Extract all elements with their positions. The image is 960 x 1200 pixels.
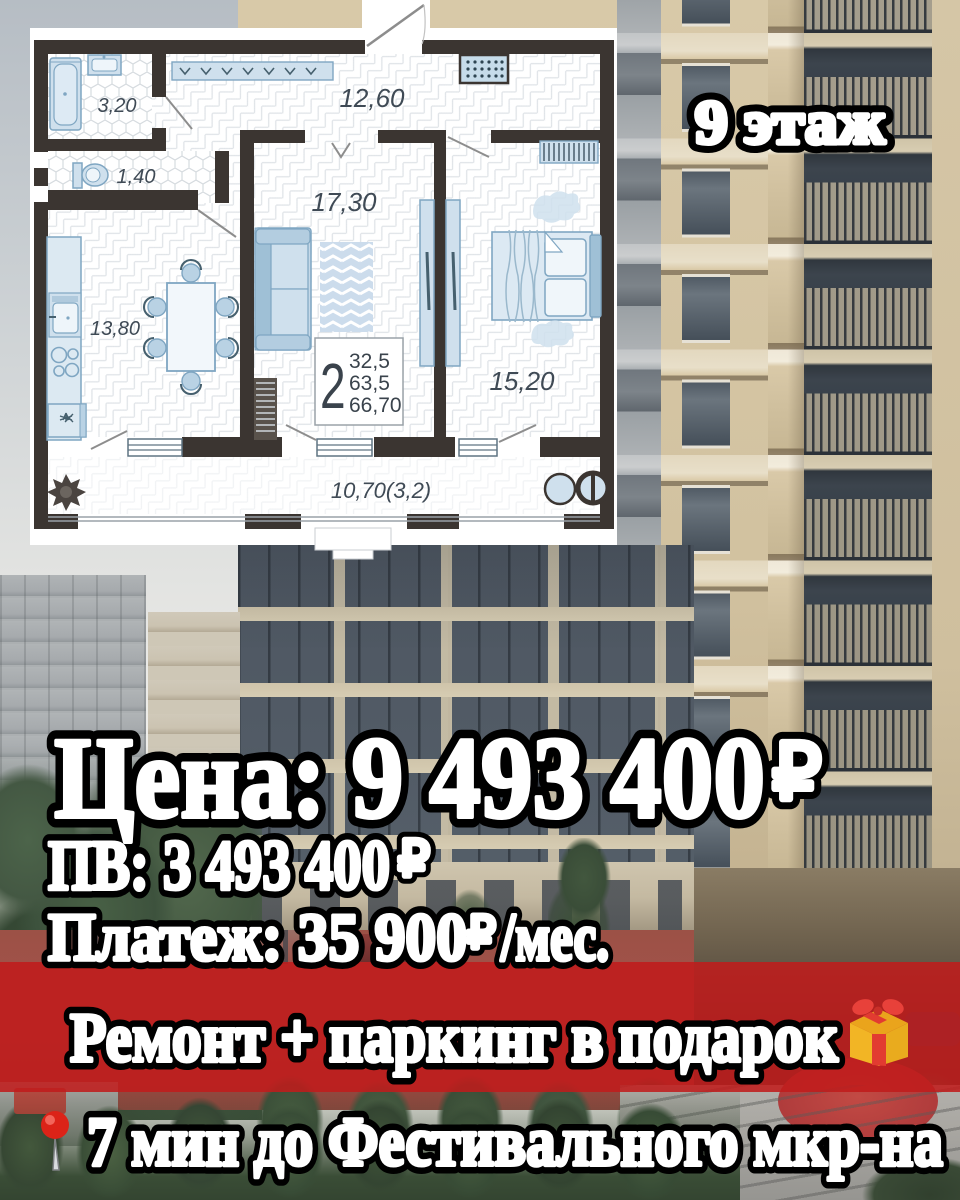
svg-text:/мес.: /мес. xyxy=(500,899,609,975)
svg-text:66,70: 66,70 xyxy=(349,394,402,417)
svg-text:9 этаж: 9 этаж xyxy=(695,90,886,157)
svg-text:17,30: 17,30 xyxy=(311,187,377,217)
svg-text:Цена: 9 493 400: Цена: 9 493 400 xyxy=(54,714,765,843)
svg-text:10,70(3,2): 10,70(3,2) xyxy=(331,478,431,503)
svg-text:₽: ₽ xyxy=(772,729,822,816)
svg-text:63,5: 63,5 xyxy=(349,372,390,395)
svg-text:32,5: 32,5 xyxy=(349,350,390,373)
svg-text:₽: ₽ xyxy=(398,831,430,887)
svg-text:Платеж: 35 900: Платеж: 35 900 xyxy=(48,899,467,975)
svg-text:7 мин до Фестивального мкр-на: 7 мин до Фестивального мкр-на xyxy=(87,1104,943,1181)
svg-text:13,80: 13,80 xyxy=(90,318,140,340)
svg-text:Ремонт + паркинг в подарок: Ремонт + паркинг в подарок xyxy=(70,1000,839,1077)
svg-text:₽: ₽ xyxy=(467,908,496,958)
svg-text:3,20: 3,20 xyxy=(98,95,137,117)
svg-text:1,40: 1,40 xyxy=(117,166,156,188)
svg-text:15,20: 15,20 xyxy=(489,366,555,396)
svg-text:12,60: 12,60 xyxy=(339,83,405,113)
svg-text:ПВ: 3 493 400: ПВ: 3 493 400 xyxy=(48,827,390,905)
svg-text:2: 2 xyxy=(320,351,346,422)
